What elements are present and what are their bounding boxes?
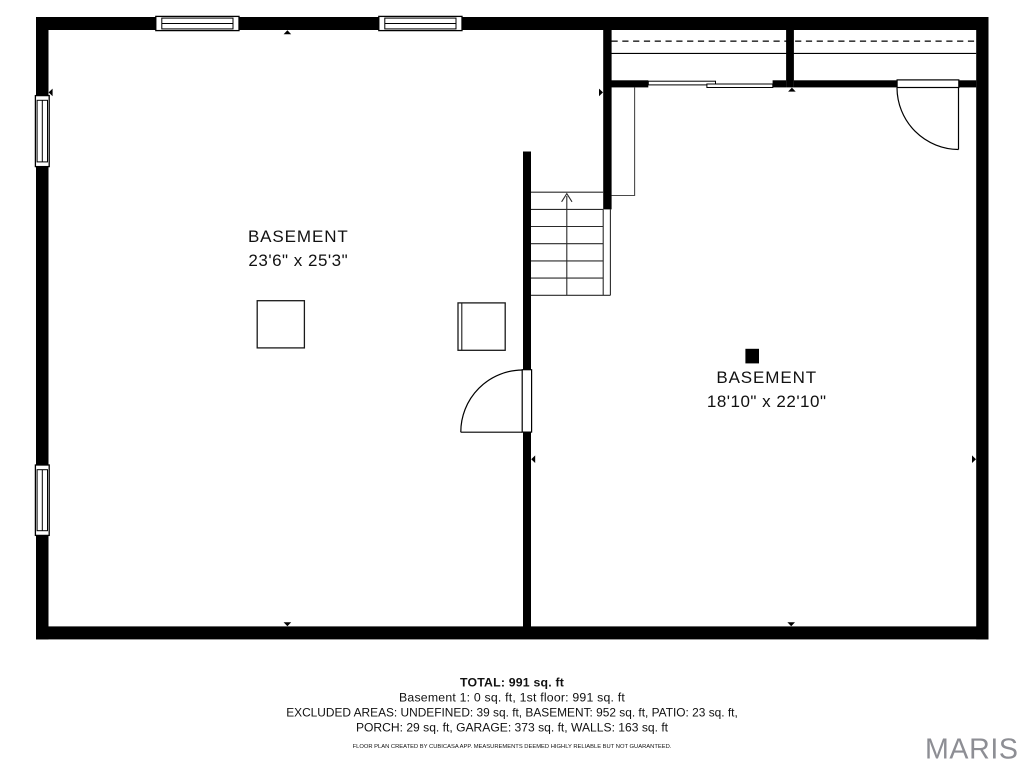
svg-text:TOTAL: 991 sq. ft: TOTAL: 991 sq. ft <box>460 675 564 689</box>
svg-text:MARIS: MARIS <box>925 733 1019 765</box>
svg-text:FLOOR PLAN CREATED BY CUBICASA: FLOOR PLAN CREATED BY CUBICASA APP. MEAS… <box>353 744 672 750</box>
svg-text:Basement 1: 0 sq. ft, 1st floo: Basement 1: 0 sq. ft, 1st floor: 991 sq.… <box>399 691 625 705</box>
svg-text:23'6" x 25'3": 23'6" x 25'3" <box>248 251 348 270</box>
svg-text:PORCH: 29 sq. ft, GARAGE: 373: PORCH: 29 sq. ft, GARAGE: 373 sq. ft, WA… <box>356 721 669 735</box>
svg-text:EXCLUDED AREAS: UNDEFINED: 39: EXCLUDED AREAS: UNDEFINED: 39 sq. ft, BA… <box>286 706 738 720</box>
svg-text:BASEMENT: BASEMENT <box>716 368 817 387</box>
svg-text:BASEMENT: BASEMENT <box>248 227 349 246</box>
svg-text:18'10" x 22'10": 18'10" x 22'10" <box>707 392 827 411</box>
